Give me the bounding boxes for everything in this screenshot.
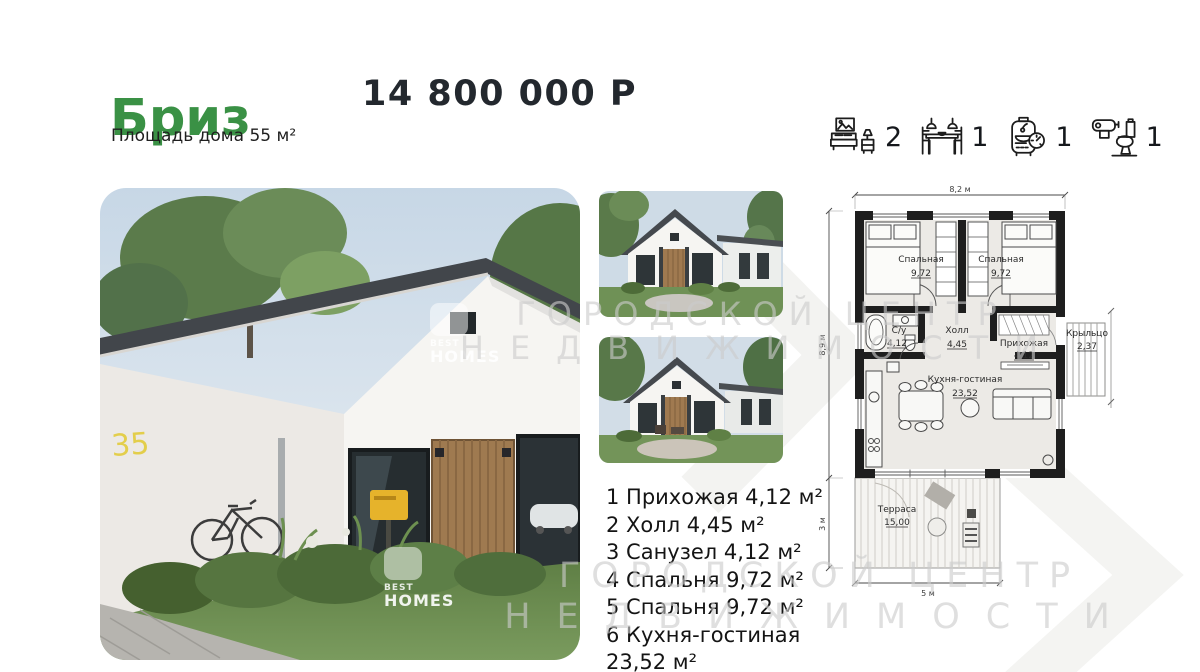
car-reflection bbox=[530, 504, 578, 528]
room-label: Кухня-гостиная bbox=[928, 375, 1003, 385]
room-area: 9,72 bbox=[911, 269, 931, 279]
bathroom-count: 1 bbox=[1146, 122, 1163, 153]
room-area: 2,37 bbox=[1077, 342, 1097, 352]
toilet-icon bbox=[1091, 116, 1139, 158]
dining-icon bbox=[920, 116, 964, 158]
room-list-line: 23,52 м² bbox=[606, 649, 823, 672]
attic-window bbox=[450, 312, 476, 334]
room-area: 4,12 bbox=[887, 339, 907, 349]
room-label: Спальная bbox=[978, 255, 1024, 265]
bed-icon bbox=[830, 116, 878, 158]
room-list-line: 3 Санузел 4,12 м² bbox=[606, 539, 823, 567]
room-label: Прихожая bbox=[1000, 339, 1048, 349]
room-list-line: 5 Спальня 9,72 м² bbox=[606, 594, 823, 622]
room-area: 4,12 bbox=[1014, 351, 1034, 361]
room-list-line: 2 Холл 4,45 м² bbox=[606, 512, 823, 540]
room-area: 4,45 bbox=[947, 340, 967, 350]
thumbnail-photo-2[interactable] bbox=[599, 337, 783, 463]
thumb1-render bbox=[599, 191, 783, 317]
feature-row: 2 1 bbox=[830, 116, 1172, 158]
dim-width: 8,2 м bbox=[949, 185, 970, 194]
dining-count: 1 bbox=[971, 122, 988, 153]
room-list-line: 1 Прихожая 4,12 м² bbox=[606, 484, 823, 512]
house-render: 35 bbox=[100, 188, 580, 660]
room-label: Терраса bbox=[877, 505, 916, 515]
house-area-label: Площадь дома 55 м² bbox=[111, 126, 296, 146]
thumbnail-photo-1[interactable] bbox=[599, 191, 783, 317]
floor-plan-drawing: Спальная 9,72 Спальная 9,72 С/у 4,12 Хол… bbox=[815, 183, 1200, 623]
price: 14 800 000 Р bbox=[362, 74, 637, 114]
dim-terrace-height: 3 м bbox=[818, 517, 827, 531]
thumb2-render bbox=[599, 337, 783, 463]
room-label: Крыльцо bbox=[1066, 329, 1108, 339]
dim-height: 8,9 м bbox=[818, 334, 827, 355]
room-list-line: 6 Кухня-гостиная bbox=[606, 622, 823, 650]
room-label: Спальная bbox=[898, 255, 944, 265]
floor-plan[interactable]: Спальная 9,72 Спальная 9,72 С/у 4,12 Хол… bbox=[815, 183, 1200, 627]
listing-page: Бриз Площадь дома 55 м² 14 800 000 Р 2 bbox=[0, 0, 1200, 672]
main-house-photo[interactable]: 35 bbox=[100, 188, 580, 660]
room-label: Холл bbox=[945, 326, 968, 336]
boiler-count: 1 bbox=[1055, 122, 1072, 153]
boiler-icon bbox=[1006, 116, 1048, 158]
feature-boiler: 1 bbox=[1006, 116, 1081, 158]
dim-terrace-width: 5 м bbox=[921, 589, 935, 598]
house-number: 35 bbox=[110, 426, 151, 464]
bedrooms-count: 2 bbox=[885, 122, 902, 153]
feature-dining: 1 bbox=[920, 116, 997, 158]
room-list-line: 4 Спальня 9,72 м² bbox=[606, 567, 823, 595]
terrace bbox=[855, 478, 1000, 568]
feature-bathroom: 1 bbox=[1091, 116, 1172, 158]
room-area: 15,00 bbox=[884, 518, 910, 528]
porch bbox=[1067, 308, 1114, 408]
room-area: 23,52 bbox=[952, 389, 978, 399]
room-area: 9,72 bbox=[991, 269, 1011, 279]
room-list: 1 Прихожая 4,12 м² 2 Холл 4,45 м² 3 Сану… bbox=[606, 484, 823, 672]
room-label: С/у bbox=[892, 326, 907, 336]
feature-bedrooms: 2 bbox=[830, 116, 911, 158]
